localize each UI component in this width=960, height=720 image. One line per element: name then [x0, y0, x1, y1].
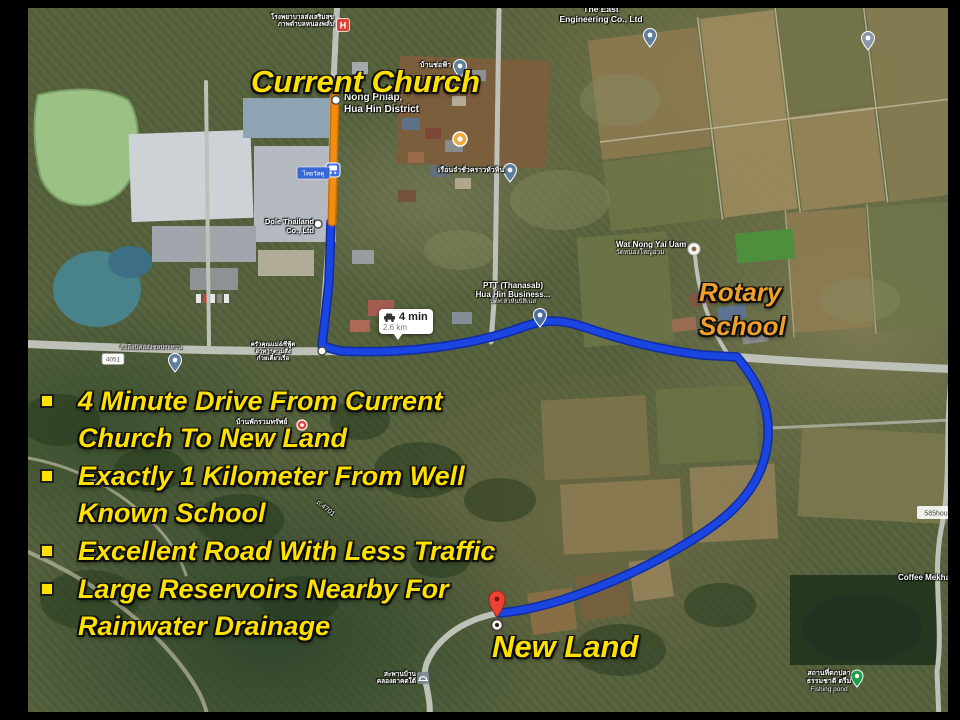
fishing-pond-label: สถานที่ตกปลาธรรมชาติ ตรีม Fishing pond [798, 670, 860, 694]
fishing-pond [802, 594, 922, 662]
frame-bottom [0, 712, 960, 720]
slide-canvas: ไทยวัสดุ H [0, 0, 960, 720]
ptt-label: PTT (Thanasab)Hua Hin Business... ปตท.หั… [468, 281, 558, 306]
svg-text:4051: 4051 [106, 356, 121, 363]
svg-text:585hou: 585hou [924, 511, 947, 518]
route-duration: 4 min [399, 311, 428, 323]
dole-stop-dot [314, 220, 322, 228]
bubble-tail [393, 333, 403, 340]
svg-text:H: H [340, 20, 347, 30]
current-church-label: Current Church [251, 64, 480, 100]
parked-cars [196, 294, 229, 303]
bullet-square-icon [42, 396, 52, 406]
bullet-item: Excellent Road With Less Traffic [42, 533, 522, 570]
rotary-school-label: Rotary School [699, 275, 786, 343]
star-poi-icon [453, 132, 467, 146]
benefits-bullet-list: 4 Minute Drive From CurrentChurch To New… [42, 383, 522, 646]
bullet-item: Exactly 1 Kilometer From WellKnown Schoo… [42, 458, 522, 532]
poi-pin [169, 354, 182, 373]
bullet-item: 4 Minute Drive From CurrentChurch To New… [42, 383, 522, 457]
green-pond [34, 90, 137, 206]
restaurant-label: ครัวคุณแม่&ซีฟู้ดอาหารตามสั่งก๋วยเตี๋ยวเ… [238, 342, 308, 363]
bridge-label: สะพานบ้านคลองตาคตใต้ [358, 671, 416, 686]
frame-left [0, 0, 28, 720]
hospital-label: โรงพยาบาลส่งเสริมสุขภาพตำบลหนองพลับ [258, 14, 334, 29]
bullet-item: Large Reservoirs Nearby ForRainwater Dra… [42, 571, 522, 645]
road-name-label: ถ.เลียบคลองชลประทาน [120, 345, 182, 352]
farm-patch-centre [540, 384, 778, 556]
bullet-square-icon [42, 546, 52, 556]
factory-buildings [129, 98, 336, 303]
thaiwatsadu-label-box: ไทยวัสดุ [297, 167, 330, 179]
bridge-icon [417, 672, 429, 684]
car-icon [383, 312, 396, 322]
route-distance: 2.6 km [383, 323, 428, 332]
temple-icon [688, 243, 700, 255]
blue-pond [108, 246, 152, 278]
dole-label: Dole ThailandCo., Ltd [256, 218, 314, 235]
plots-near-new-land [525, 557, 677, 636]
thaiwatsadu-label: ไทยวัสดุ [302, 169, 325, 177]
route-info-bubble: 4 min 2.6 km [379, 309, 433, 334]
frame-right [948, 0, 960, 720]
hospital-icon: H [337, 19, 350, 32]
road-shield: 4051 [102, 354, 124, 365]
coffee-label: Coffee Mekha [898, 573, 950, 582]
prison-label: เรือนจำชั่วคราวหัวหิน [438, 167, 504, 175]
bullet-square-icon [42, 471, 52, 481]
route-orange-line [332, 92, 335, 222]
wat-label: Wat Nong Yai Uamวัดหนองใหญ่อวม [616, 240, 686, 257]
bullet-square-icon [42, 584, 52, 594]
frame-top [0, 0, 960, 8]
poi-pin [504, 164, 517, 183]
route-junction-dot [318, 347, 326, 355]
